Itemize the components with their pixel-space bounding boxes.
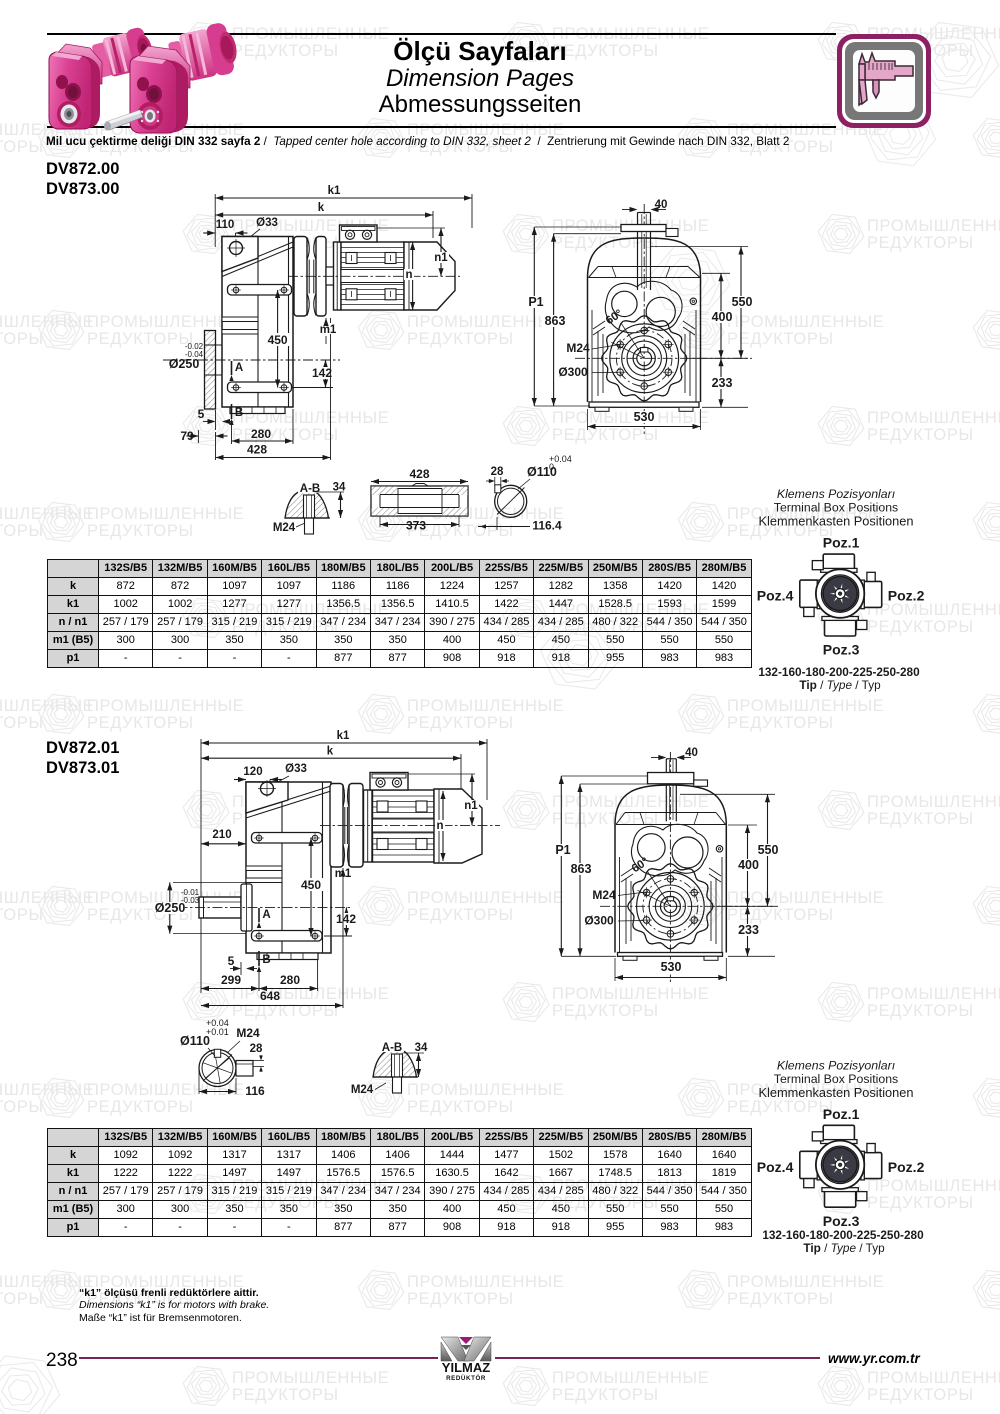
svg-text:Terminal Box Positions: Terminal Box Positions <box>774 501 898 515</box>
svg-text:A-B: A-B <box>300 483 320 495</box>
svg-text:132-160-180-200-225-250-280: 132-160-180-200-225-250-280 <box>758 665 920 679</box>
svg-text:120: 120 <box>243 766 262 778</box>
svg-text:Ø250: Ø250 <box>155 901 186 915</box>
svg-text:n: n <box>405 269 412 281</box>
svg-text:Klemens Pozisyonları: Klemens Pozisyonları <box>777 1058 895 1072</box>
svg-text:280: 280 <box>280 973 300 987</box>
svg-text:A: A <box>262 909 270 921</box>
svg-text:Ø33: Ø33 <box>285 763 307 775</box>
svg-text:550: 550 <box>758 843 779 857</box>
svg-text:Ø110: Ø110 <box>180 1034 210 1048</box>
svg-text:Terminal Box Positions: Terminal Box Positions <box>774 1072 898 1086</box>
svg-text:Poz.4: Poz.4 <box>757 1159 794 1175</box>
svg-text:110: 110 <box>216 219 235 231</box>
svg-text:Poz.4: Poz.4 <box>757 588 794 604</box>
svg-text:B: B <box>235 407 243 419</box>
svg-text:k1: k1 <box>328 185 341 197</box>
svg-text:A: A <box>235 362 243 374</box>
svg-text:450: 450 <box>301 878 321 892</box>
svg-text:233: 233 <box>712 376 733 390</box>
svg-text:n: n <box>436 820 443 832</box>
svg-text:M24: M24 <box>592 888 616 902</box>
svg-text:132-160-180-200-225-250-280: 132-160-180-200-225-250-280 <box>762 1228 924 1242</box>
svg-text:530: 530 <box>661 960 682 974</box>
svg-text:M24: M24 <box>273 522 296 534</box>
svg-text:Klemmenkasten Positionen: Klemmenkasten Positionen <box>758 1085 913 1100</box>
svg-text:142: 142 <box>336 912 356 926</box>
svg-text:Klemens Pozisyonları: Klemens Pozisyonları <box>777 487 895 501</box>
svg-text:Ø300: Ø300 <box>558 365 588 379</box>
svg-text:373: 373 <box>406 519 426 533</box>
svg-text:Ø300: Ø300 <box>584 914 614 928</box>
svg-text:116.4: 116.4 <box>532 519 562 533</box>
svg-text:28: 28 <box>250 1043 263 1055</box>
svg-text:Poz.1: Poz.1 <box>823 535 860 551</box>
svg-text:233: 233 <box>738 923 759 937</box>
svg-text:550: 550 <box>732 295 753 309</box>
svg-text:B: B <box>262 954 270 966</box>
svg-text:Ø33: Ø33 <box>256 217 278 229</box>
svg-text:863: 863 <box>571 862 592 876</box>
svg-text:Tip / Type / Typ: Tip / Type / Typ <box>803 1241 885 1255</box>
svg-text:530: 530 <box>634 410 655 424</box>
svg-text:5: 5 <box>198 407 205 421</box>
svg-text:210: 210 <box>212 829 231 841</box>
svg-text:M24: M24 <box>236 1026 260 1040</box>
svg-text:116: 116 <box>245 1084 265 1098</box>
svg-text:280: 280 <box>251 427 271 441</box>
svg-text:5: 5 <box>228 954 235 968</box>
svg-text:M24: M24 <box>351 1084 374 1096</box>
svg-text:A-B: A-B <box>382 1042 402 1054</box>
svg-text:Ø250: Ø250 <box>169 357 200 371</box>
svg-text:k: k <box>327 746 334 758</box>
svg-text:Tip / Type / Typ: Tip / Type / Typ <box>799 678 881 692</box>
svg-text:k1: k1 <box>337 730 350 742</box>
svg-text:M24: M24 <box>566 341 590 355</box>
svg-text:n1: n1 <box>434 252 448 264</box>
svg-text:Ø110: Ø110 <box>527 465 557 479</box>
svg-text:28: 28 <box>491 466 504 478</box>
svg-text:34: 34 <box>415 1042 428 1054</box>
svg-text:P1: P1 <box>555 843 570 857</box>
svg-text:Klemmenkasten Positionen: Klemmenkasten Positionen <box>758 514 913 529</box>
svg-text:n1: n1 <box>464 800 478 812</box>
svg-text:863: 863 <box>545 314 566 328</box>
svg-text:400: 400 <box>738 858 759 872</box>
svg-text:450: 450 <box>268 333 288 347</box>
svg-text:Poz.1: Poz.1 <box>823 1106 860 1122</box>
svg-text:Poz.3: Poz.3 <box>823 642 860 658</box>
svg-text:428: 428 <box>409 467 429 481</box>
svg-text:Poz.2: Poz.2 <box>888 1159 925 1175</box>
svg-text:648: 648 <box>260 989 280 1003</box>
svg-text:299: 299 <box>221 973 241 987</box>
svg-text:Poz.2: Poz.2 <box>888 588 925 604</box>
svg-text:400: 400 <box>712 310 733 324</box>
svg-text:142: 142 <box>312 366 332 380</box>
svg-text:Poz.3: Poz.3 <box>823 1213 860 1229</box>
svg-text:P1: P1 <box>528 295 543 309</box>
svg-text:428: 428 <box>247 443 267 457</box>
svg-text:k: k <box>318 202 325 214</box>
